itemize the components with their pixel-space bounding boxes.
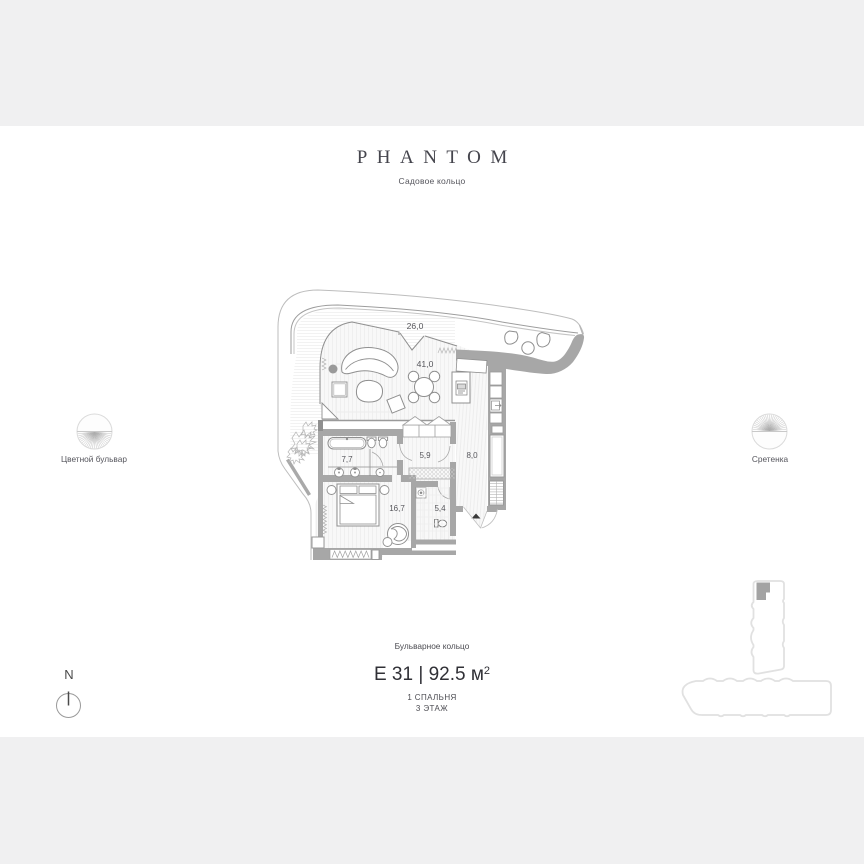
svg-text:26,0: 26,0 [407,321,424,331]
svg-text:7,7: 7,7 [341,455,353,464]
svg-text:5,9: 5,9 [419,451,431,460]
svg-text:5,4: 5,4 [434,504,446,513]
svg-text:16,7: 16,7 [389,504,405,513]
svg-text:8,0: 8,0 [466,451,478,460]
svg-text:41,0: 41,0 [417,359,434,369]
